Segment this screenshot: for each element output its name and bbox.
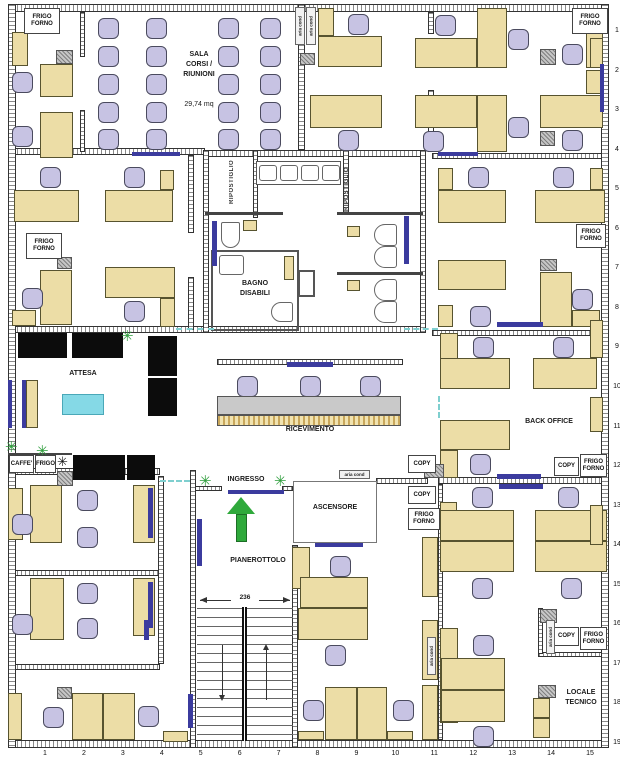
chair	[473, 726, 494, 747]
chair	[98, 129, 119, 150]
desk	[160, 170, 174, 190]
desk	[318, 36, 382, 67]
desk	[40, 64, 73, 97]
desk	[300, 577, 368, 608]
stair-arrow-line	[266, 650, 267, 700]
desk	[298, 731, 324, 740]
desk	[387, 731, 413, 740]
wall-segment	[376, 478, 428, 484]
desk	[243, 220, 257, 231]
desk	[318, 8, 334, 36]
copy-label-box: COPY	[554, 627, 579, 646]
appliance-label-box: FRIGO FORNO	[26, 233, 62, 259]
desk	[438, 305, 453, 327]
blue-accent	[600, 64, 604, 112]
desk	[30, 485, 62, 543]
ac-unit	[57, 471, 73, 486]
desk	[590, 320, 603, 358]
desk	[440, 358, 510, 389]
desk	[440, 510, 514, 541]
partition-wall	[337, 272, 423, 275]
wall-segment	[428, 12, 434, 34]
grid-number-right: 2	[610, 67, 620, 75]
desk	[105, 190, 173, 222]
wc-fixture	[221, 222, 240, 248]
sofa	[72, 333, 123, 358]
ac-unit	[540, 259, 557, 271]
wall-segment	[80, 12, 85, 57]
chair	[218, 18, 239, 39]
chair	[553, 167, 574, 188]
chair	[146, 74, 167, 95]
dimension-arrow-right	[283, 597, 290, 603]
wc-fixture	[374, 246, 397, 268]
coffee-table	[62, 394, 104, 415]
chair	[348, 14, 369, 35]
chair	[435, 15, 456, 36]
room-label: INGRESSO	[221, 475, 271, 485]
room-label: ATTESA	[58, 369, 108, 379]
grid-number-bottom: 11	[427, 750, 441, 758]
sofa	[148, 378, 177, 416]
appliance-label-box: FRIGO FORNO	[408, 508, 440, 530]
appliance-label-box: FRIGO FORNO	[576, 224, 606, 248]
chair	[98, 74, 119, 95]
ac-unit	[300, 53, 315, 65]
grid-number-bottom: 1	[38, 750, 52, 758]
grid-number-right: 8	[610, 304, 620, 312]
desk	[440, 420, 510, 450]
wall-segment	[420, 150, 426, 333]
blue-accent	[228, 490, 284, 494]
wall-segment	[158, 476, 164, 664]
desk	[298, 608, 368, 640]
blue-accent	[497, 474, 541, 479]
grid-number-bottom: 3	[116, 750, 130, 758]
wall-segment	[188, 277, 194, 330]
chair	[470, 306, 491, 327]
ac-unit	[56, 50, 73, 64]
aria-cond-label: aria cond	[546, 620, 555, 654]
desk	[540, 95, 603, 128]
wall-segment	[203, 150, 426, 157]
desk	[160, 298, 175, 327]
stair-arrow-line	[222, 645, 223, 695]
arrow-up-icon	[263, 644, 269, 650]
desk	[533, 718, 550, 738]
sofa	[73, 455, 125, 480]
desk	[535, 190, 605, 223]
grid-number-bottom: 15	[583, 750, 597, 758]
blue-accent	[148, 488, 153, 538]
grid-number-right: 11	[610, 423, 620, 431]
blue-accent	[144, 620, 149, 640]
chair	[338, 130, 359, 151]
appliance-label-box: FRIGO	[35, 455, 56, 473]
copy-label-box: COPY	[408, 486, 436, 504]
chair	[98, 46, 119, 67]
desk	[540, 272, 572, 327]
grid-number-bottom: 5	[194, 750, 208, 758]
grid-number-right: 7	[610, 264, 620, 272]
chair	[472, 578, 493, 599]
room-label: BACK OFFICE	[509, 417, 589, 427]
chair	[300, 376, 321, 397]
appliance-label-box: FRIGO FORNO	[24, 8, 60, 34]
desk	[438, 168, 453, 190]
desk	[103, 693, 135, 740]
chair	[470, 454, 491, 475]
chair	[146, 129, 167, 150]
chair	[553, 337, 574, 358]
chair	[260, 102, 281, 123]
room-label: SALA CORSI / RIUNIONI	[168, 50, 230, 80]
chair	[146, 46, 167, 67]
dimension-arrow-left	[200, 597, 207, 603]
wall-segment	[8, 664, 160, 670]
chair	[558, 487, 579, 508]
grid-number-bottom: 2	[77, 750, 91, 758]
chair	[77, 490, 98, 511]
desk	[477, 8, 507, 68]
duct-line	[176, 328, 214, 330]
washbasin	[280, 165, 298, 181]
chair	[423, 131, 444, 152]
room-label: LOCALE TECNICO	[551, 688, 611, 708]
chair	[138, 706, 159, 727]
washbasin	[219, 255, 244, 275]
wall-segment	[8, 570, 160, 576]
grid-number-bottom: 9	[349, 750, 363, 758]
grid-number-right: 10	[610, 383, 620, 391]
desk	[310, 95, 382, 128]
desk	[533, 358, 597, 389]
grid-number-right: 4	[610, 146, 620, 154]
plant-icon: ✳	[5, 440, 21, 456]
desk	[415, 38, 477, 68]
duct-line	[404, 328, 438, 330]
grid-number-right: 5	[610, 185, 620, 193]
chair	[562, 130, 583, 151]
chair	[77, 583, 98, 604]
grid-number-bottom: 13	[505, 750, 519, 758]
appliance-label-box: CAFFE'	[9, 455, 34, 473]
chair	[473, 337, 494, 358]
wall-segment	[8, 740, 608, 748]
grid-number-right: 16	[610, 620, 620, 628]
sofa	[18, 333, 67, 358]
grid-number-right: 17	[610, 660, 620, 668]
desk	[40, 112, 73, 158]
desk	[347, 226, 360, 237]
partition-wall	[205, 212, 283, 215]
room-label: 29,74 mq	[168, 100, 230, 110]
grid-number-bottom: 14	[544, 750, 558, 758]
washbasin	[322, 165, 340, 181]
appliance-label-box: FRIGO FORNO	[580, 627, 607, 650]
appliance-label-box: FRIGO FORNO	[580, 454, 607, 477]
desk	[415, 95, 477, 128]
desk	[477, 95, 507, 152]
ac-unit	[540, 49, 556, 65]
blue-accent	[22, 380, 26, 428]
grid-number-bottom: 10	[388, 750, 402, 758]
desk	[26, 380, 38, 428]
wc-fixture	[271, 302, 293, 322]
chair	[260, 74, 281, 95]
desk	[440, 541, 514, 572]
bagno-shaft	[298, 270, 315, 297]
aria-cond-label: aria cond	[306, 7, 316, 45]
room-label-vertical: RIPOSTIGLIO	[344, 163, 354, 215]
plant-icon: ✳	[121, 329, 137, 345]
aria-cond-label: aria cond	[339, 470, 370, 479]
desk	[347, 280, 360, 291]
chair	[561, 578, 582, 599]
stair-railing	[242, 607, 247, 741]
desk	[533, 698, 550, 718]
ac-unit	[540, 131, 555, 146]
blue-accent	[132, 152, 180, 156]
duct-line	[438, 396, 440, 418]
entrance-arrow-stem	[236, 514, 247, 542]
chair	[43, 707, 64, 728]
grid-number-right: 9	[610, 343, 620, 351]
chair	[330, 556, 351, 577]
desk	[12, 310, 36, 326]
desk	[8, 693, 22, 740]
desk	[12, 32, 28, 66]
desk	[438, 260, 506, 290]
grid-number-bottom: 12	[466, 750, 480, 758]
grid-number-right: 1	[610, 27, 620, 35]
chair	[473, 635, 494, 656]
chair	[260, 46, 281, 67]
grid-number-right: 3	[610, 106, 620, 114]
chair	[40, 167, 61, 188]
chair	[146, 18, 167, 39]
chair	[303, 700, 324, 721]
reception-counter	[217, 396, 401, 415]
blue-accent	[404, 216, 409, 264]
chair	[12, 614, 33, 635]
grid-number-right: 6	[610, 225, 620, 233]
copy-label-box: COPY	[554, 457, 579, 476]
wc-fixture	[374, 279, 397, 301]
chair	[360, 376, 381, 397]
grid-number-bottom: 4	[155, 750, 169, 758]
washbasin	[301, 165, 319, 181]
duct-line	[160, 480, 190, 482]
blue-accent	[197, 519, 202, 566]
floor-plan: 236✳✳✳✳✳✳SALA CORSI / RIUNIONI29,74 mqBA…	[0, 0, 620, 768]
grid-number-bottom: 8	[311, 750, 325, 758]
desk	[441, 690, 505, 722]
chair	[325, 645, 346, 666]
copy-label-box: COPY	[408, 455, 436, 473]
chair	[77, 527, 98, 548]
wall-segment	[203, 150, 209, 333]
room-label: PIANEROTTOLO	[218, 556, 298, 566]
chair	[468, 167, 489, 188]
wall-segment	[80, 110, 85, 152]
appliance-label-box: FRIGO FORNO	[572, 8, 608, 34]
blue-accent	[188, 694, 193, 728]
plant-icon: ✳	[274, 474, 290, 490]
desk	[590, 397, 603, 432]
wall-segment	[188, 155, 194, 233]
desk	[590, 168, 603, 190]
grid-number-right: 14	[610, 541, 620, 549]
blue-accent	[499, 484, 543, 489]
desk	[438, 190, 506, 223]
chair	[572, 289, 593, 310]
grid-number-right: 15	[610, 581, 620, 589]
blue-accent	[497, 322, 543, 327]
desk	[163, 731, 188, 742]
chair	[98, 18, 119, 39]
room-label-vertical: RIPOSTIGLIO	[229, 158, 239, 206]
desk	[422, 685, 438, 740]
dimension-label: 236	[231, 593, 259, 603]
plant-icon: ✳	[199, 474, 215, 490]
chair	[77, 618, 98, 639]
desk	[357, 687, 387, 740]
room-label: ASCENSORE	[300, 503, 370, 513]
grid-number-right: 18	[610, 699, 620, 707]
chair	[393, 700, 414, 721]
chair	[562, 44, 583, 65]
chair	[124, 167, 145, 188]
desk	[30, 578, 64, 640]
desk	[72, 693, 103, 740]
chair	[508, 29, 529, 50]
desk	[422, 537, 438, 597]
chair	[146, 102, 167, 123]
washbasin	[259, 165, 277, 181]
grid-number-right: 12	[610, 462, 620, 470]
chair	[260, 18, 281, 39]
desk	[40, 270, 72, 325]
wc-fixture	[374, 224, 397, 246]
chair	[22, 288, 43, 309]
desk	[441, 658, 505, 690]
wall-segment	[8, 4, 16, 748]
blue-accent	[438, 152, 478, 156]
wc-fixture	[374, 301, 397, 323]
chair	[12, 514, 33, 535]
chair	[12, 126, 33, 147]
desk	[535, 541, 607, 572]
grid-number-right: 19	[610, 739, 620, 747]
chair	[472, 487, 493, 508]
chair	[237, 376, 258, 397]
blue-accent	[8, 380, 12, 428]
snowflake-icon: ✳	[57, 455, 71, 469]
desk	[14, 190, 79, 222]
grid-number-right: 13	[610, 502, 620, 510]
desk	[325, 687, 357, 740]
sofa	[148, 336, 177, 376]
chair	[98, 102, 119, 123]
chair	[508, 117, 529, 138]
grid-number-bottom: 7	[272, 750, 286, 758]
aria-cond-label: aria cond	[295, 7, 305, 45]
blue-accent	[315, 543, 363, 547]
ac-unit	[57, 687, 72, 699]
room-label: RICEVIMENTO	[270, 425, 350, 435]
chair	[12, 72, 33, 93]
room-label: BAGNO DISABILI	[213, 279, 297, 299]
blue-accent	[287, 362, 333, 367]
chair	[260, 129, 281, 150]
chair	[124, 301, 145, 322]
entrance-arrow-icon	[227, 497, 255, 514]
sofa	[127, 455, 155, 480]
desk	[590, 505, 603, 545]
blue-accent	[212, 221, 217, 266]
chair	[218, 129, 239, 150]
arrow-down-icon	[219, 695, 225, 701]
aria-cond-label: aria cond	[427, 637, 436, 675]
desk	[284, 256, 294, 280]
grid-number-bottom: 6	[233, 750, 247, 758]
desk	[105, 267, 175, 298]
